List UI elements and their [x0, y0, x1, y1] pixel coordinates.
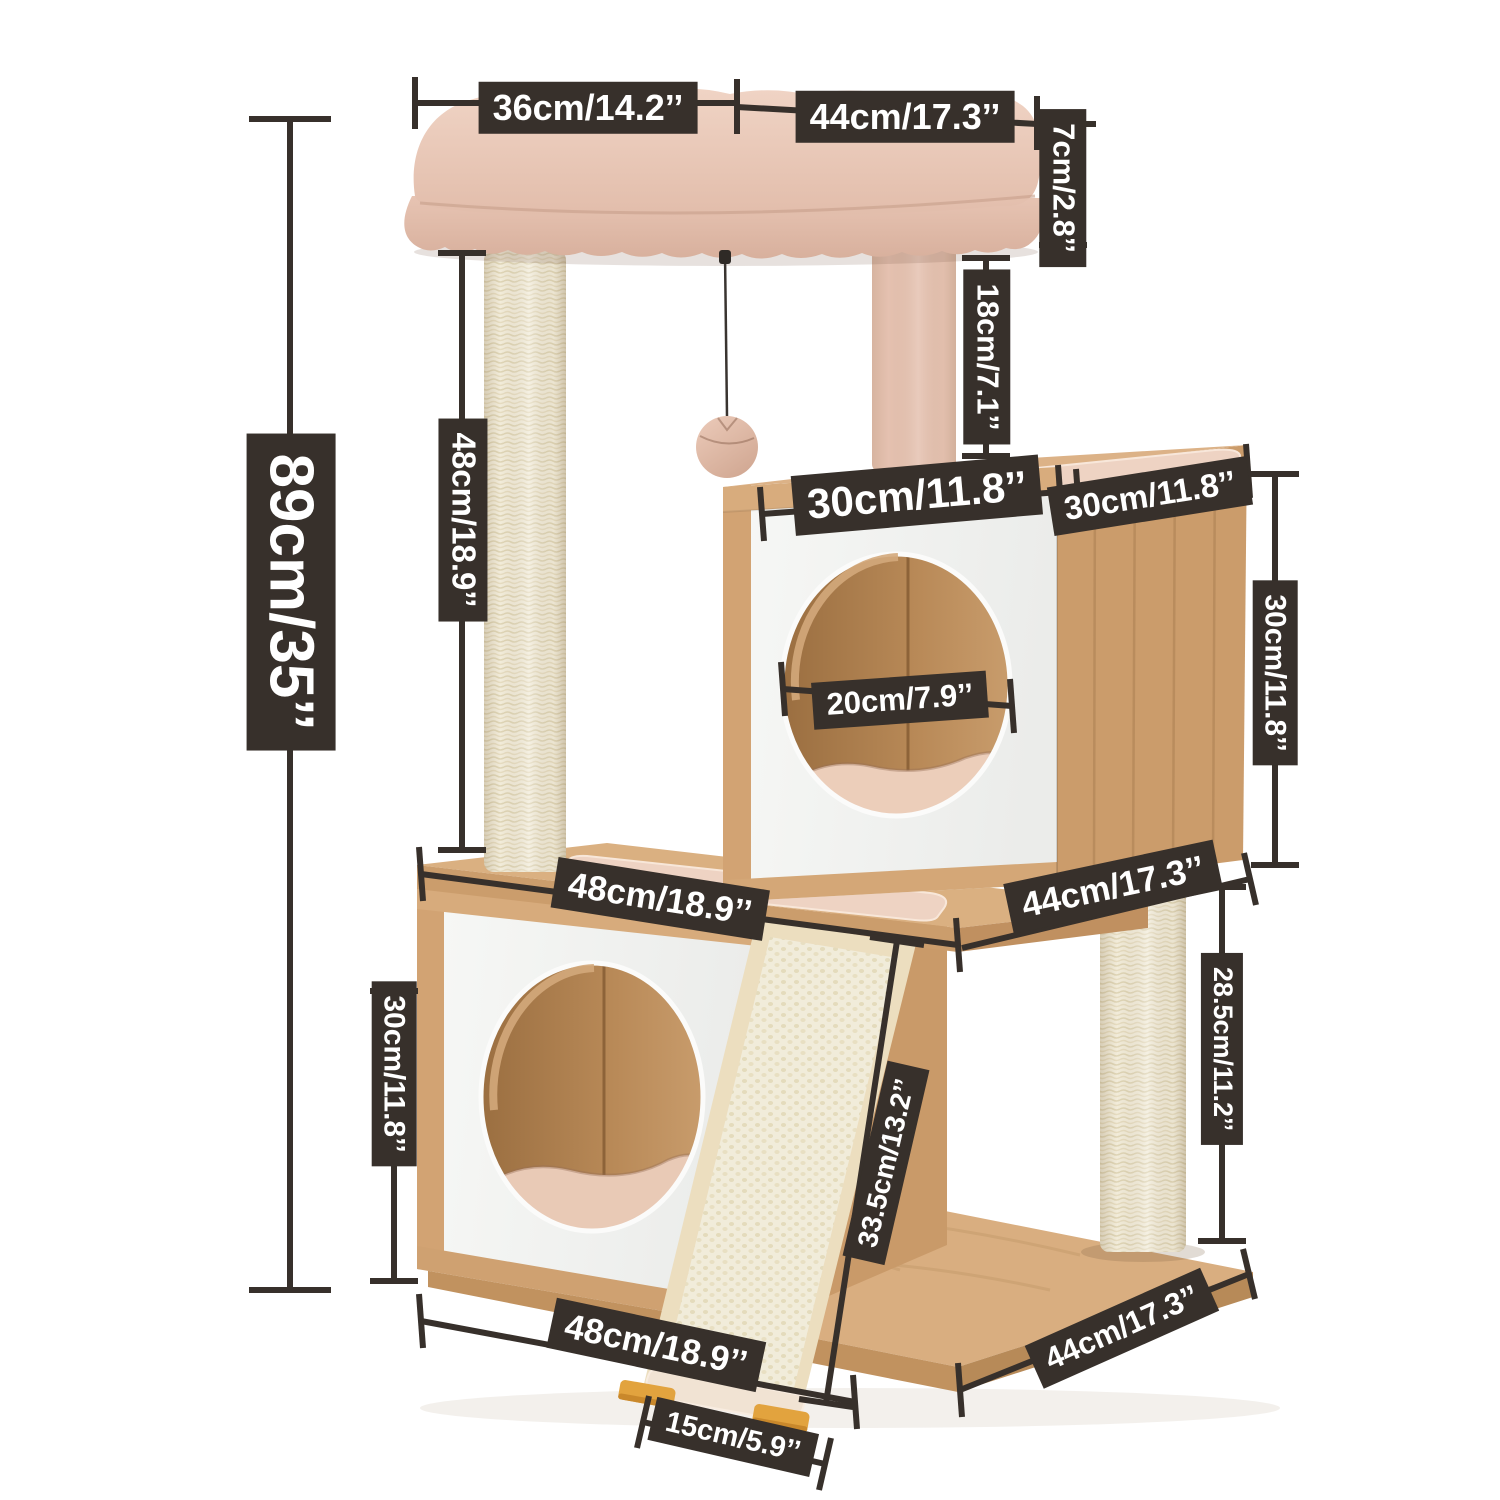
dimension-diagram: 36cm/14.2’’ 44cm/17.3’’ 7cm/2.8’’ 18cm/7…	[0, 0, 1500, 1500]
dim-label-lower-post-height: 28.5cm/11.2’’	[1201, 953, 1243, 1145]
dim-label-post-top-gap: 18cm/7.1’’	[964, 269, 1011, 444]
dim-label-post-height: 48cm/18.9’’	[439, 419, 488, 622]
dim-label-top-width-right: 44cm/17.3’’	[796, 91, 1015, 143]
dim-label-bed-thickness: 7cm/2.8’’	[1040, 109, 1087, 267]
toy-ball	[696, 250, 758, 478]
plush-post	[872, 240, 956, 472]
dim-label-total-height: 89cm/35’’	[246, 434, 335, 751]
dim-label-cube-height: 30cm/11.8’’	[1252, 580, 1297, 765]
dim-label-lower-cube-height: 30cm/11.8’’	[371, 981, 416, 1166]
scratching-post-right	[1081, 878, 1205, 1262]
dim-label-top-width-left: 36cm/14.2’’	[479, 82, 698, 134]
scratching-post-left	[484, 250, 566, 872]
